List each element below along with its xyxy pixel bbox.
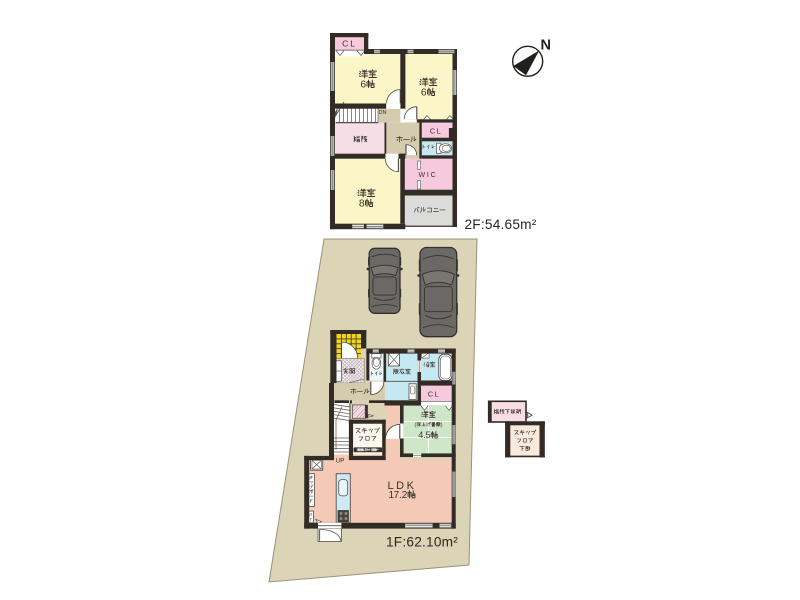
svg-text:CL: CL bbox=[428, 390, 441, 399]
svg-text:CL: CL bbox=[342, 39, 357, 49]
svg-text:DN: DN bbox=[378, 110, 386, 116]
svg-text:5: 5 bbox=[425, 430, 430, 440]
svg-text:8: 8 bbox=[359, 199, 365, 210]
svg-text:(: ( bbox=[415, 422, 417, 428]
svg-text:WIC: WIC bbox=[418, 172, 437, 179]
svg-text:T: T bbox=[309, 518, 312, 523]
svg-text:2F:54.65m²: 2F:54.65m² bbox=[465, 217, 537, 232]
svg-text:6: 6 bbox=[421, 88, 427, 99]
svg-text:N: N bbox=[541, 38, 551, 54]
svg-text:6: 6 bbox=[360, 80, 366, 91]
svg-text:UP: UP bbox=[336, 457, 345, 464]
svg-text:CL: CL bbox=[430, 127, 443, 136]
svg-text:2: 2 bbox=[402, 490, 408, 501]
svg-text:1F:62.10m²: 1F:62.10m² bbox=[386, 535, 458, 550]
svg-text:): ) bbox=[441, 422, 443, 428]
